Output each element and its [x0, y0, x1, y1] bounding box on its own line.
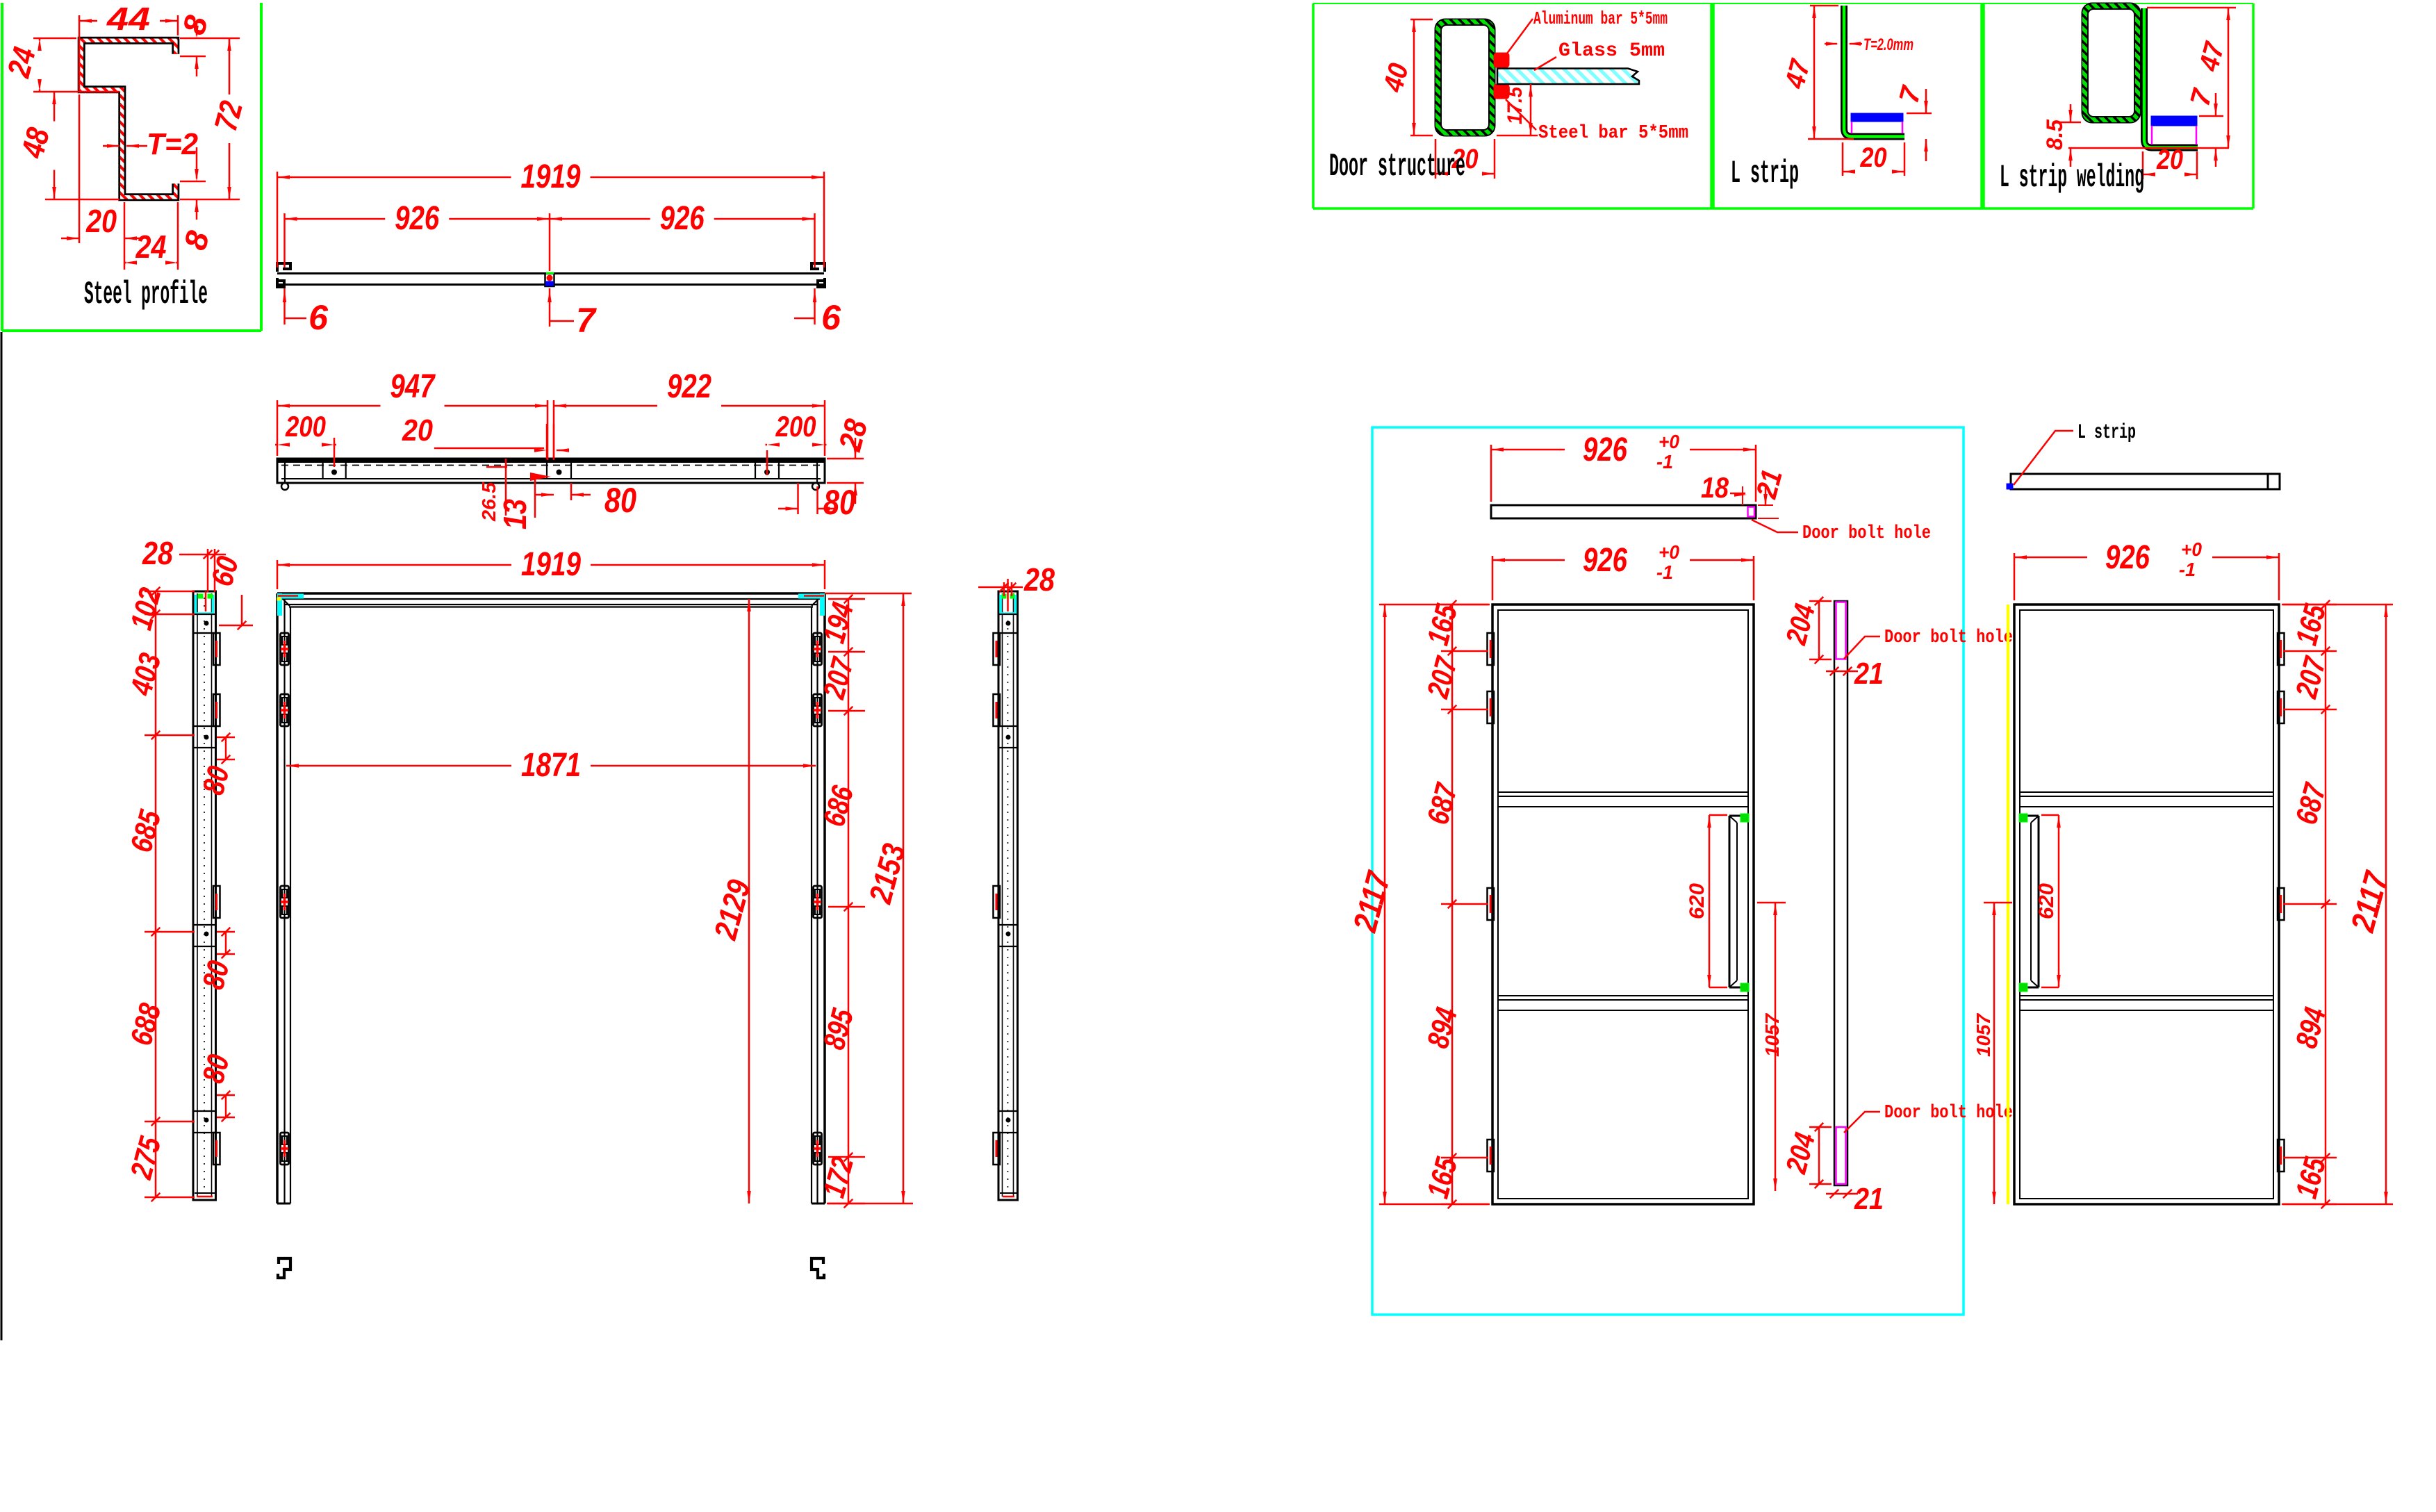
svg-text:620: 620	[1686, 883, 1709, 919]
svg-text:Door bolt hole: Door bolt hole	[1802, 523, 1931, 544]
svg-text:L strip welding: L strip welding	[2000, 160, 2144, 196]
svg-text:28: 28	[1023, 561, 1055, 598]
svg-text:+0: +0	[1659, 541, 1679, 563]
svg-text:947: 947	[390, 368, 436, 405]
svg-text:18: 18	[1701, 471, 1729, 504]
svg-text:20: 20	[85, 203, 117, 239]
svg-text:Door structure: Door structure	[1329, 149, 1465, 185]
svg-text:1919: 1919	[521, 158, 581, 195]
svg-text:620: 620	[2035, 883, 2058, 919]
svg-text:20: 20	[2156, 145, 2183, 175]
svg-text:926: 926	[660, 200, 705, 237]
svg-text:8.5: 8.5	[2042, 119, 2067, 150]
svg-text:Aluminum bar 5*5mm: Aluminum bar 5*5mm	[1533, 8, 1668, 29]
svg-text:+0: +0	[2181, 539, 2202, 560]
svg-text:7: 7	[576, 301, 597, 340]
svg-text:926: 926	[2105, 539, 2150, 576]
svg-text:-1: -1	[2179, 559, 2196, 580]
svg-text:L strip: L strip	[1731, 156, 1799, 192]
svg-text:24: 24	[135, 229, 167, 265]
svg-text:-1: -1	[1656, 451, 1673, 472]
svg-text:T=2: T=2	[147, 127, 199, 161]
svg-text:926: 926	[1583, 542, 1627, 579]
svg-text:1057: 1057	[1973, 1013, 1994, 1057]
svg-text:926: 926	[1583, 432, 1627, 468]
svg-text:13: 13	[497, 499, 533, 529]
svg-text:L strip: L strip	[2077, 421, 2136, 445]
svg-text:80: 80	[823, 483, 855, 522]
svg-text:1871: 1871	[521, 747, 581, 784]
svg-text:Steel profile: Steel profile	[84, 277, 208, 313]
svg-text:6: 6	[821, 298, 841, 337]
svg-text:17.5: 17.5	[1504, 86, 1526, 124]
svg-text:200: 200	[775, 410, 816, 443]
svg-text:922: 922	[667, 368, 711, 405]
svg-text:Glass 5mm: Glass 5mm	[1558, 40, 1665, 62]
svg-text:21: 21	[1854, 657, 1884, 691]
svg-text:44: 44	[106, 1, 150, 37]
svg-text:Door bolt hole: Door bolt hole	[1884, 627, 2013, 648]
svg-text:-1: -1	[1656, 561, 1673, 583]
svg-text:T=2.0mm: T=2.0mm	[1863, 35, 1914, 54]
svg-text:1057: 1057	[1761, 1013, 1783, 1057]
svg-text:+0: +0	[1659, 431, 1679, 452]
svg-text:6: 6	[308, 298, 329, 337]
svg-text:Steel bar 5*5mm: Steel bar 5*5mm	[1538, 123, 1688, 144]
svg-text:80: 80	[604, 481, 636, 520]
svg-text:926: 926	[395, 200, 439, 237]
svg-text:1919: 1919	[521, 546, 581, 583]
svg-text:28: 28	[142, 535, 173, 571]
svg-text:20: 20	[1860, 142, 1887, 173]
svg-text:20: 20	[402, 413, 433, 447]
svg-text:21: 21	[1854, 1182, 1884, 1216]
svg-text:200: 200	[285, 410, 326, 443]
